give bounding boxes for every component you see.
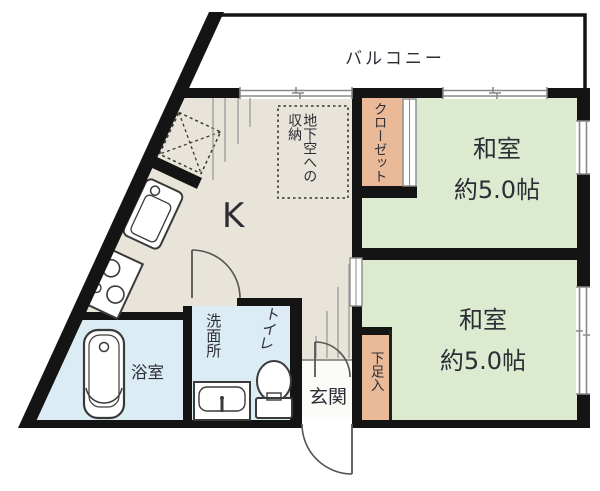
underfloor-storage-label: 地下空への収納 <box>286 113 316 199</box>
floor-plan: バルコニー K 地下空への収納 クローゼット 和室 約5.0帖 和室 約5.0帖… <box>0 0 600 491</box>
washroom-label: 洗面所 <box>205 313 221 373</box>
window-room-upper <box>576 121 590 174</box>
floor-plan-drawing <box>0 0 600 491</box>
japanese-room-upper-label: 和室 約5.0帖 <box>417 129 577 205</box>
closet-door <box>403 99 416 186</box>
front-door <box>302 424 352 474</box>
closet-label: クローゼット <box>371 102 386 188</box>
shoe-cabinet-label: 下足入 <box>368 351 383 421</box>
room-lower-sliding-door <box>350 258 362 306</box>
vanity-sink-icon <box>194 382 250 420</box>
toilet-icon <box>256 361 292 418</box>
japanese-room-lower-label: 和室 約5.0帖 <box>403 300 563 376</box>
balcony-window-kitchen <box>240 87 352 99</box>
entrance-label: 玄関 <box>302 382 354 409</box>
kitchen-label: K <box>222 196 244 236</box>
window-room-lower <box>576 287 590 394</box>
balcony-window-room <box>443 87 547 99</box>
front-door-opening <box>302 419 352 429</box>
bathroom-label: 浴室 <box>131 359 164 383</box>
balcony-label: バルコニー <box>310 44 480 69</box>
bathtub-icon <box>84 330 124 418</box>
